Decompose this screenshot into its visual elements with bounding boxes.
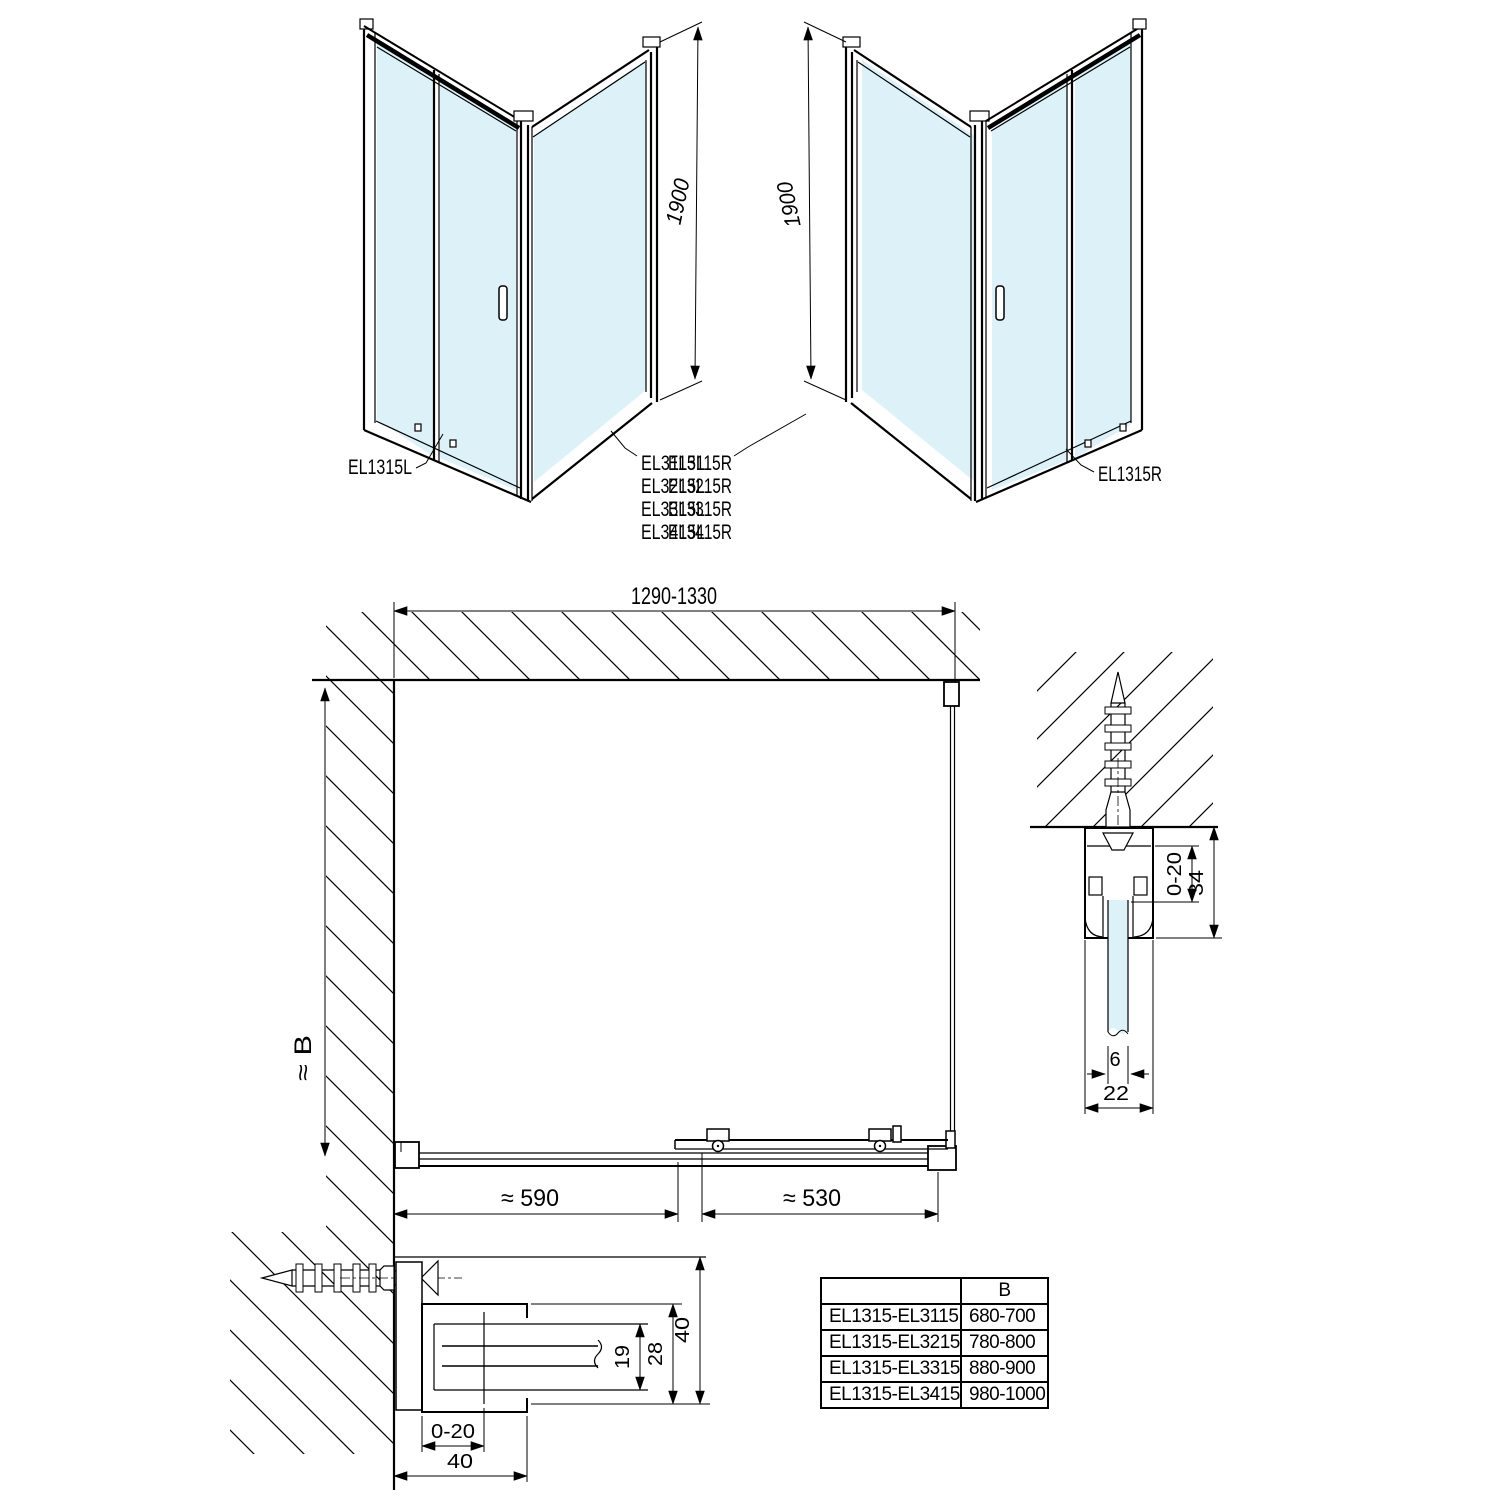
door-handle	[499, 286, 507, 320]
iso-right-door-label: EL1315R	[1098, 463, 1162, 486]
rail-stopper	[893, 1126, 901, 1142]
detail-bottom-depth-dim-text: 40	[672, 1317, 694, 1343]
door-glass-fixed-pane-right	[1075, 40, 1131, 458]
size-table: B EL1315-EL3115 680-700 EL1315-EL3215 78…	[820, 1277, 1049, 1409]
door-glass-sliding-pane	[440, 80, 516, 490]
roller-carriage-right	[869, 1129, 891, 1141]
iso-left-door-label: EL1315L	[348, 456, 412, 479]
size-table-row-2: EL1315-EL3215 780-800	[821, 1330, 1048, 1356]
plan-depth-dim-text: ≈ B	[290, 1035, 317, 1081]
roller-carriage-left	[707, 1129, 729, 1141]
iso-right-height-dim-text: 1900	[772, 179, 806, 230]
detail-bottom-dimensions: 0-20 40 19 28 40	[394, 1257, 710, 1482]
iso-right-panel-label-1: EL3115R	[668, 452, 732, 475]
wall-hatch-top	[326, 612, 980, 679]
door-track-plan	[395, 1126, 956, 1170]
iso-view-left: 1900 EL1315L EL3115L EL3215L EL3315L EL3…	[348, 19, 705, 544]
detail-side-adjust-dim-text: 0-20	[1164, 852, 1186, 896]
plan-depth-dimension: ≈ B	[290, 688, 325, 1156]
sliding-rail-plan	[675, 1126, 948, 1152]
iso-right-panel-label-3: EL3315R	[668, 498, 732, 521]
drawing-svg: 1900 EL1315L EL3115L EL3215L EL3315L EL3…	[0, 0, 1500, 1500]
door-handle-right	[996, 286, 1004, 320]
size-table-model-2: EL1315-EL3215	[821, 1330, 961, 1356]
size-table-row-3: EL1315-EL3315 880-900	[821, 1356, 1048, 1382]
detail-side-depth-dim-text: 34	[1186, 870, 1208, 896]
iso-left-height-dim-text: 1900	[661, 176, 695, 227]
detail-bottom-adjust-dim-text: 0-20	[431, 1421, 475, 1443]
technical-drawing-sheet: 1900 EL1315L EL3115L EL3215L EL3315L EL3…	[0, 0, 1500, 1500]
iso-view-right: 1900 EL3115R EL3215R EL3315R EL3415R EL1…	[668, 19, 1162, 544]
wall-hatch-left	[326, 680, 394, 1232]
detail-side-profile: 0-20 34 6 22	[1030, 652, 1222, 1114]
size-table-value-3: 880-900	[961, 1356, 1048, 1382]
size-table-header-b: B	[961, 1278, 1048, 1304]
door-glass-sliding-pane-right	[992, 78, 1068, 490]
plan-width-dim-text: 1290-1330	[631, 583, 717, 610]
countersunk-screw-head-horizontal	[421, 1261, 438, 1295]
size-table-model-4: EL1315-EL3415	[821, 1382, 961, 1408]
size-table-model-1: EL1315-EL3115	[821, 1304, 961, 1330]
size-table-value-1: 680-700	[961, 1304, 1048, 1330]
glass-pane-section	[1108, 900, 1128, 1036]
plan-bottom-dimensions: ≈ 590 ≈ 530	[394, 1153, 938, 1222]
size-table-value-2: 780-800	[961, 1330, 1048, 1356]
size-table-header-row: B	[821, 1278, 1048, 1304]
corner-post	[514, 111, 533, 501]
detail-bottom-profile: 0-20 40 19 28 40	[230, 1232, 710, 1482]
detail-side-glass-dim-text: 6	[1109, 1049, 1120, 1071]
detail-side-width-dim-text: 22	[1103, 1083, 1129, 1105]
iso-right-panel-label-2: EL3215R	[668, 475, 732, 498]
detail-bottom-pocket-outer-dim-text: 28	[645, 1342, 667, 1366]
wall-bracket-top	[944, 682, 959, 706]
side-panel-glass	[534, 60, 646, 482]
side-panel-glass-right	[862, 60, 975, 482]
side-panel-plan	[944, 682, 959, 1150]
size-table-header-empty	[821, 1278, 961, 1304]
iso-left-height-dimension: 1900	[660, 22, 702, 400]
size-table-value-4: 980-1000	[961, 1382, 1048, 1408]
size-table-row-1: EL1315-EL3115 680-700	[821, 1304, 1048, 1330]
plan-sliding-dim-text: ≈ 530	[783, 1185, 841, 1212]
iso-right-panel-label-4: EL3415R	[668, 521, 732, 544]
track-bracket-left	[395, 1142, 419, 1168]
door-glass-fixed-pane	[377, 42, 433, 456]
wall-profile-section	[394, 1257, 706, 1412]
detail-bottom-glass-pocket-dim-text: 19	[612, 1345, 634, 1369]
plan-fixed-dim-text: ≈ 590	[501, 1185, 559, 1212]
detail-bottom-width-dim-text: 40	[447, 1451, 473, 1473]
iso-left-labels: EL1315L EL3115L EL3215L EL3315L EL3415L	[348, 431, 705, 544]
size-table-row-4: EL1315-EL3415 980-1000	[821, 1382, 1048, 1408]
size-table-model-3: EL1315-EL3315	[821, 1356, 961, 1382]
iso-right-height-dimension: 1900	[772, 22, 846, 400]
